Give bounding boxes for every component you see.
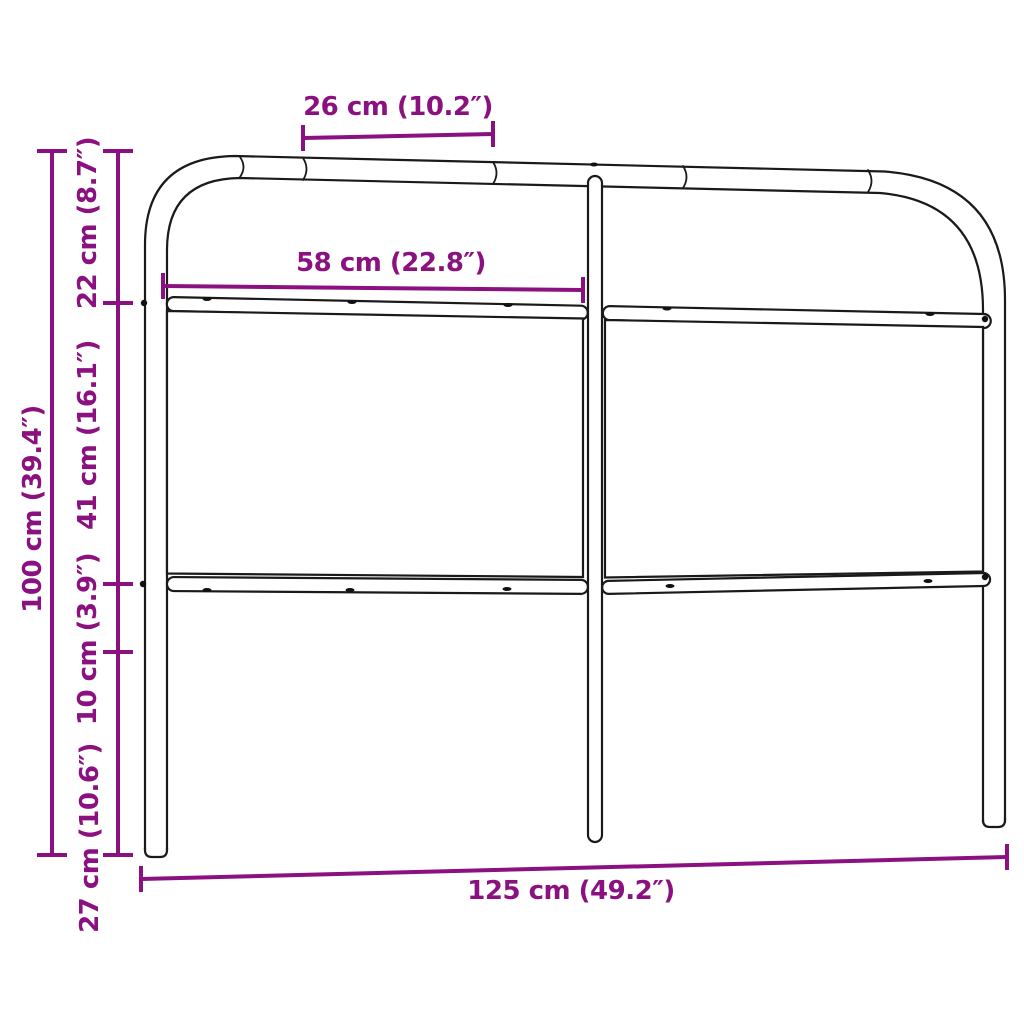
left-panel xyxy=(167,311,583,577)
dim-label-panel-width: 58 cm (22.8″) xyxy=(296,250,486,276)
dim-label-top-segment: 26 cm (10.2″) xyxy=(303,94,493,120)
dim-label-leg-height: 27 cm (10.6″) xyxy=(77,743,103,933)
lower-rail-left xyxy=(167,577,588,594)
right-panel xyxy=(605,320,983,578)
dim-label-gap-height: 10 cm (3.9″) xyxy=(75,553,101,725)
tube-joint-marks xyxy=(240,157,872,192)
dim-line-top-segment xyxy=(303,134,493,138)
left-leg-cap xyxy=(145,848,167,857)
dim-label-upper-section-height: 22 cm (8.7″) xyxy=(75,137,101,309)
dim-label-panel-section-height: 41 cm (16.1″) xyxy=(75,340,101,530)
right-leg-cap xyxy=(983,818,1005,827)
dim-label-total-height: 100 cm (39.4″) xyxy=(20,405,46,612)
product-dimension-image: 26 cm (10.2″) 58 cm (22.8″) 100 cm (39.4… xyxy=(0,0,1024,1024)
headboard-line-art xyxy=(0,0,1024,1024)
dim-label-total-width: 125 cm (49.2″) xyxy=(467,878,674,904)
center-post xyxy=(588,176,602,842)
dim-line-panel-width xyxy=(163,286,583,290)
